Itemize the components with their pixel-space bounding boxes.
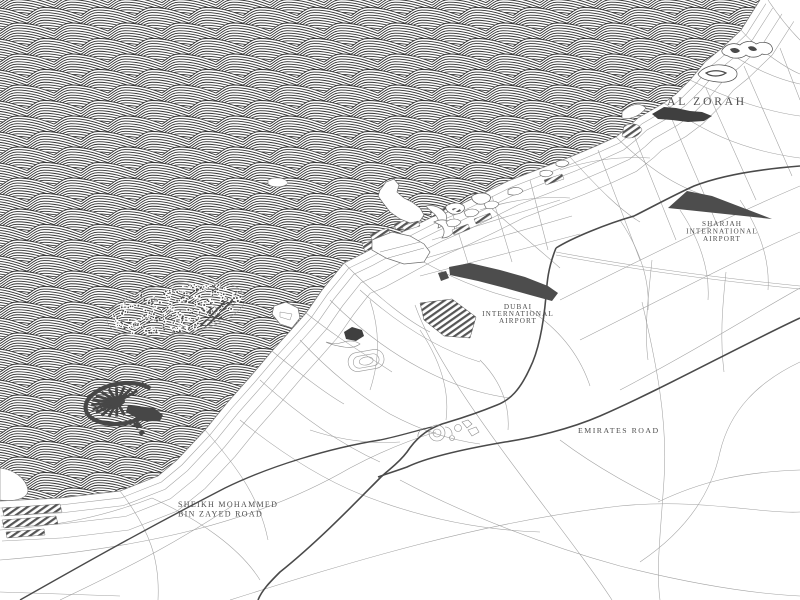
svg-text:AL ZORAH: AL ZORAH (667, 96, 747, 108)
svg-text:AIRPORT: AIRPORT (499, 317, 537, 325)
svg-text:SHEIKH MOHAMMED: SHEIKH MOHAMMED (178, 500, 278, 509)
svg-text:EMIRATES ROAD: EMIRATES ROAD (578, 426, 660, 435)
svg-text:AIRPORT: AIRPORT (703, 235, 741, 243)
svg-text:BIN ZAYED ROAD: BIN ZAYED ROAD (178, 510, 263, 519)
